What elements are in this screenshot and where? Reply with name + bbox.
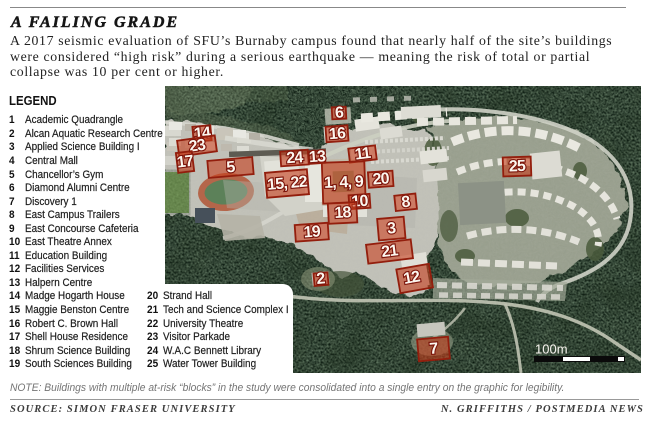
svg-text:20: 20 (372, 170, 390, 188)
svg-text:24: 24 (286, 149, 304, 167)
svg-text:15, 22: 15, 22 (267, 173, 309, 193)
svg-text:17: 17 (176, 153, 195, 172)
svg-text:25: 25 (509, 158, 527, 176)
svg-text:100m: 100m (535, 342, 568, 357)
svg-text:18: 18 (334, 204, 352, 222)
svg-text:21: 21 (380, 242, 399, 261)
svg-text:1, 4, 9: 1, 4, 9 (324, 173, 364, 191)
svg-text:16: 16 (328, 125, 346, 143)
svg-text:19: 19 (303, 223, 321, 241)
